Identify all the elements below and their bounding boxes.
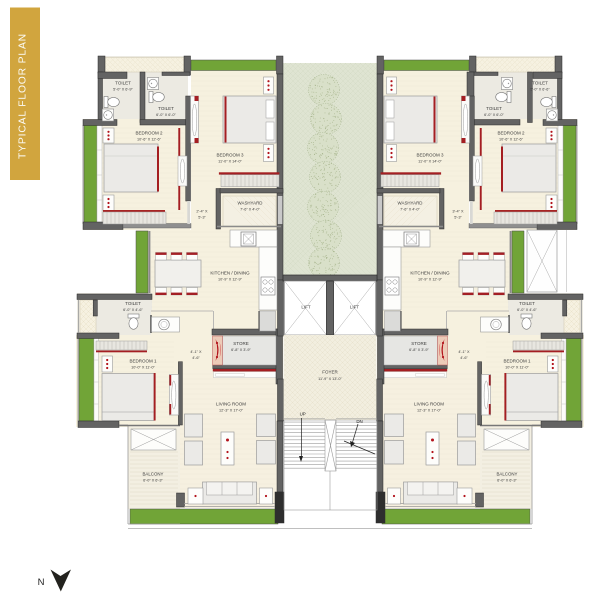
svg-text:4'-1" X: 4'-1" X bbox=[190, 350, 202, 354]
svg-text:10'-0" X 11'-0": 10'-0" X 11'-0" bbox=[505, 366, 529, 370]
svg-text:TOILET: TOILET bbox=[532, 81, 548, 86]
svg-text:6'-0" X 4'-6": 6'-0" X 4'-6" bbox=[123, 308, 143, 312]
svg-text:10'-6" X 12'-6": 10'-6" X 12'-6" bbox=[499, 138, 524, 142]
svg-text:11'-0" X 14'-0": 11'-0" X 14'-0" bbox=[218, 160, 242, 164]
svg-text:6'-8" X 3'-9": 6'-8" X 3'-9" bbox=[231, 348, 251, 352]
svg-text:BEDROOM 2: BEDROOM 2 bbox=[135, 131, 163, 136]
svg-text:6'-8" X 3'-9": 6'-8" X 3'-9" bbox=[409, 348, 429, 352]
svg-text:BEDROOM 3: BEDROOM 3 bbox=[216, 153, 244, 158]
svg-text:STORE: STORE bbox=[411, 341, 426, 346]
svg-text:7'-6" X 4'-0": 7'-6" X 4'-0" bbox=[400, 208, 420, 212]
svg-text:WASHYARD: WASHYARD bbox=[238, 201, 263, 206]
svg-text:11'-0" X 14'-0": 11'-0" X 14'-0" bbox=[418, 160, 442, 164]
svg-text:5'-3": 5'-3" bbox=[454, 216, 462, 220]
svg-text:5'-0" X 6'-6": 5'-0" X 6'-6" bbox=[530, 88, 550, 92]
svg-text:4'-1" X: 4'-1" X bbox=[458, 350, 470, 354]
svg-text:BALCONY: BALCONY bbox=[143, 472, 164, 477]
svg-text:BEDROOM 1: BEDROOM 1 bbox=[129, 359, 157, 364]
svg-text:12'-3" X 17'-0": 12'-3" X 17'-0" bbox=[417, 409, 442, 413]
svg-text:10'-6" X 12'-6": 10'-6" X 12'-6" bbox=[137, 138, 162, 142]
svg-text:6'-0" X 6'-0": 6'-0" X 6'-0" bbox=[156, 113, 176, 117]
svg-text:TYPICAL FLOOR PLAN: TYPICAL FLOOR PLAN bbox=[18, 33, 29, 159]
svg-text:LIFT: LIFT bbox=[301, 305, 311, 310]
svg-text:LIVING ROOM: LIVING ROOM bbox=[216, 402, 246, 407]
svg-text:STORE: STORE bbox=[233, 341, 248, 346]
svg-text:LIVING ROOM: LIVING ROOM bbox=[414, 402, 444, 407]
svg-text:12'-3" X 17'-0": 12'-3" X 17'-0" bbox=[219, 409, 244, 413]
svg-text:TOILET: TOILET bbox=[519, 301, 535, 306]
svg-text:TOILET: TOILET bbox=[115, 81, 131, 86]
svg-text:6'-0" X 4'-6": 6'-0" X 4'-6" bbox=[517, 308, 537, 312]
svg-text:6'-0" X 6'-0": 6'-0" X 6'-0" bbox=[484, 113, 504, 117]
svg-text:LIFT: LIFT bbox=[350, 305, 360, 310]
svg-text:5'-3": 5'-3" bbox=[198, 216, 206, 220]
svg-text:2'-4" X: 2'-4" X bbox=[196, 210, 208, 214]
svg-text:BEDROOM 3: BEDROOM 3 bbox=[416, 153, 444, 158]
svg-text:UP: UP bbox=[300, 412, 306, 417]
svg-text:KITCHEN / DINING: KITCHEN / DINING bbox=[410, 271, 450, 276]
svg-text:6'-0" X 6'-3": 6'-0" X 6'-3" bbox=[497, 479, 517, 483]
svg-text:10'-9" X 12'-9": 10'-9" X 12'-9" bbox=[418, 278, 443, 282]
svg-text:10'-0" X 11'-0": 10'-0" X 11'-0" bbox=[131, 366, 155, 370]
svg-text:N: N bbox=[38, 577, 45, 588]
svg-text:10'-9" X 12'-9": 10'-9" X 12'-9" bbox=[218, 278, 243, 282]
svg-text:BEDROOM 2: BEDROOM 2 bbox=[497, 131, 525, 136]
svg-text:4'-6": 4'-6" bbox=[460, 356, 468, 360]
svg-text:TOILET: TOILET bbox=[125, 301, 141, 306]
svg-text:KITCHEN / DINING: KITCHEN / DINING bbox=[210, 271, 250, 276]
svg-text:3'-4" X: 3'-4" X bbox=[452, 210, 464, 214]
svg-text:BEDROOM 1: BEDROOM 1 bbox=[503, 359, 531, 364]
svg-text:BALCONY: BALCONY bbox=[497, 472, 518, 477]
svg-text:TOILET: TOILET bbox=[486, 106, 502, 111]
svg-text:TOILET: TOILET bbox=[158, 106, 174, 111]
svg-text:5'-0" X 6'-9": 5'-0" X 6'-9" bbox=[113, 88, 133, 92]
svg-text:6'-0" X 6'-3": 6'-0" X 6'-3" bbox=[143, 479, 163, 483]
svg-text:FOYER: FOYER bbox=[322, 370, 338, 375]
svg-text:11'-9" X 13'-0": 11'-9" X 13'-0" bbox=[318, 377, 342, 381]
svg-text:4'-6": 4'-6" bbox=[192, 356, 200, 360]
svg-text:DN: DN bbox=[356, 419, 362, 424]
svg-text:WASHYARD: WASHYARD bbox=[398, 201, 423, 206]
svg-text:7'-6" X 4'-0": 7'-6" X 4'-0" bbox=[240, 208, 260, 212]
